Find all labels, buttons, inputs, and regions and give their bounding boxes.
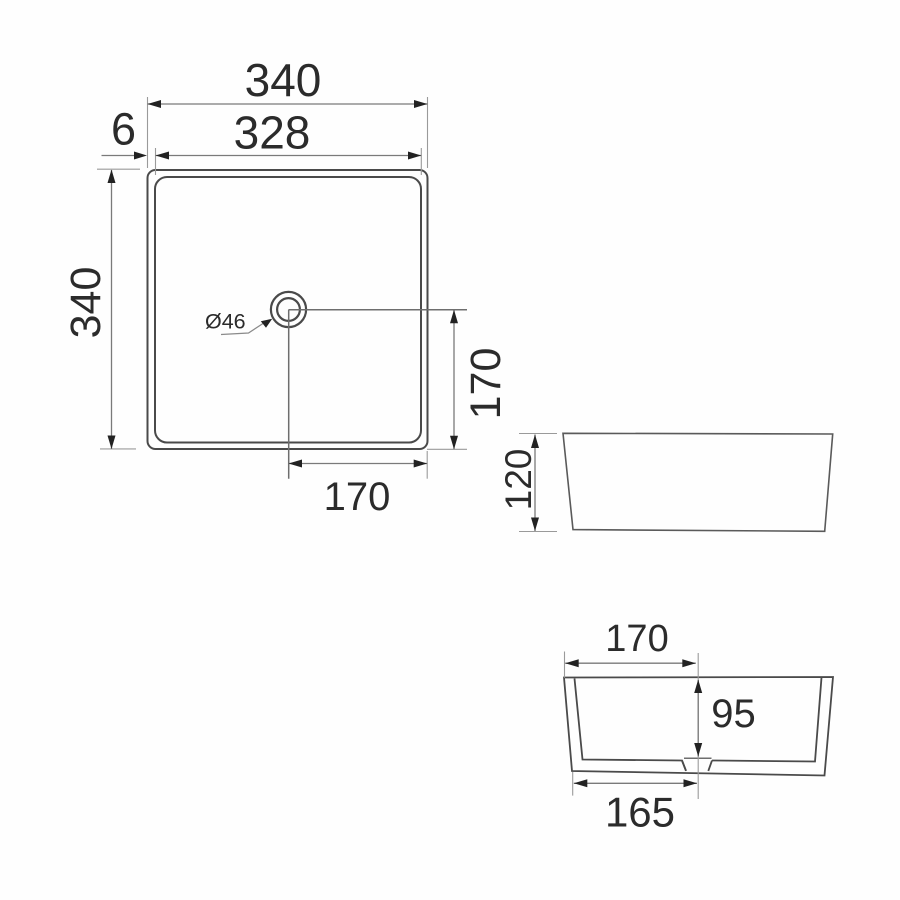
svg-text:340: 340 xyxy=(62,267,110,339)
svg-text:170: 170 xyxy=(324,475,391,519)
svg-text:95: 95 xyxy=(711,692,756,736)
svg-text:170: 170 xyxy=(605,618,668,660)
svg-text:328: 328 xyxy=(234,107,311,159)
svg-text:120: 120 xyxy=(498,449,539,511)
svg-text:165: 165 xyxy=(605,789,675,836)
svg-text:170: 170 xyxy=(462,348,510,420)
svg-text:6: 6 xyxy=(111,103,136,154)
svg-text:Ø46: Ø46 xyxy=(205,310,246,334)
svg-text:340: 340 xyxy=(245,54,322,106)
